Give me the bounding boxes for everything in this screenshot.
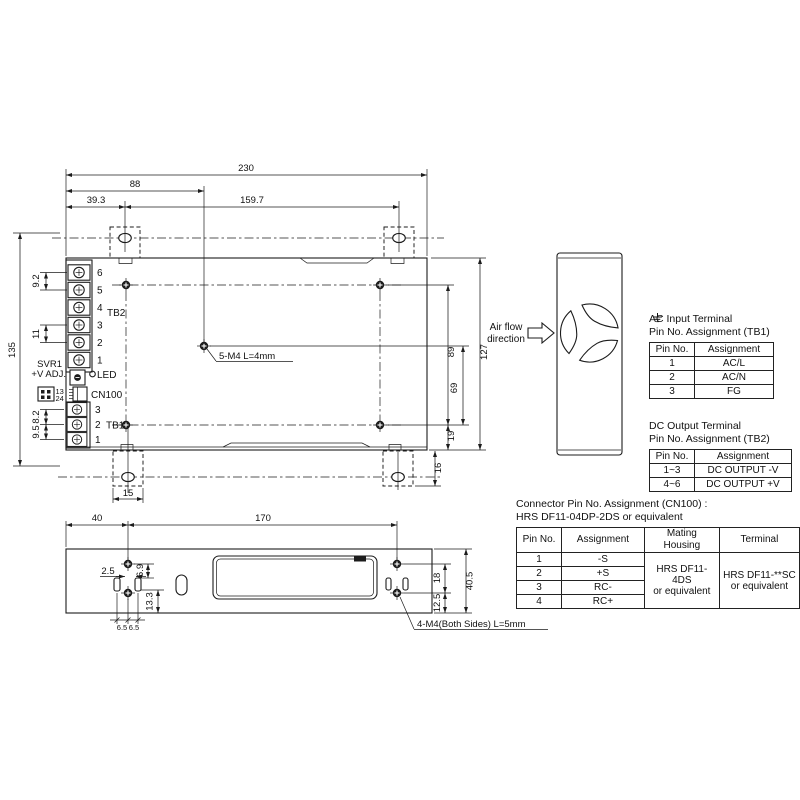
dim-135: 135 (7, 342, 18, 358)
pin-no: 4 (517, 595, 562, 609)
dim-88: 88 (130, 179, 141, 190)
dim-89: 89 (446, 347, 457, 358)
dim-6.5-left: 6.5 (117, 623, 127, 632)
ac-input-section: AC Input Terminal Pin No. Assignment (TB… (649, 313, 774, 399)
dim-40: 40 (92, 513, 103, 524)
dim-127: 127 (479, 344, 490, 360)
col-header: Assignment (562, 528, 645, 553)
ac-input-table: Pin No. Assignment 1 AC/L 2 AC/N 3 FG (649, 342, 774, 399)
ac-input-title-2: Pin No. Assignment (TB1) (649, 326, 774, 339)
pin-no: 2 (517, 567, 562, 581)
label-mark (354, 556, 366, 562)
v-adj-label: +V ADJ. (31, 369, 66, 380)
assignment: AC/L (695, 357, 774, 371)
vent-slot (403, 578, 408, 590)
vent-slot (114, 578, 120, 591)
dim-13.3: 13.3 (145, 592, 156, 611)
dc-output-title-1: DC Output Terminal (649, 420, 792, 433)
col-header: Pin No. (650, 450, 695, 464)
fan-icon (544, 284, 628, 368)
dim-18: 18 (432, 573, 443, 584)
cn100-table: Pin No. Assignment Mating Housing Termin… (516, 527, 800, 609)
tb2-pin-1: 1 (97, 356, 103, 367)
assignment: AC/N (695, 371, 774, 385)
col-header: Terminal (719, 528, 799, 553)
pin-no: 2 (650, 371, 695, 385)
screw-hole (119, 278, 133, 292)
cn100-connector-icon (73, 387, 87, 401)
dim-39.3: 39.3 (87, 195, 106, 206)
dim-11: 11 (31, 329, 42, 339)
col-header: Pin No. (517, 528, 562, 553)
pin-no: 3 (517, 581, 562, 595)
assignment: -S (562, 553, 645, 567)
dim-69: 69 (449, 383, 460, 394)
tb2-pin-4: 4 (97, 303, 103, 314)
dim-6.9: 6.9 (135, 564, 146, 577)
screw-hole (121, 586, 135, 600)
assignment: RC- (562, 581, 645, 595)
ac-input-title-1: AC Input Terminal (649, 313, 774, 326)
dim-15: 15 (123, 488, 134, 499)
cn100-plug-icon (38, 387, 54, 401)
dim-40.5: 40.5 (465, 572, 476, 591)
pin-no: 4~6 (650, 478, 695, 492)
dim-230: 230 (238, 163, 254, 174)
dim-170: 170 (255, 513, 271, 524)
oval-slot (176, 575, 187, 595)
dc-output-section: DC Output Terminal Pin No. Assignment (T… (649, 420, 792, 492)
table-row: 1 -S HRS DF11-4DS or equivalent HRS DF11… (517, 553, 800, 567)
assignment: FG (695, 385, 774, 399)
table-row: 1~3 DC OUTPUT -V (650, 464, 792, 478)
led-label: LED (97, 370, 116, 381)
pin-no: 1 (517, 553, 562, 567)
tb1-pin-2: 2 (95, 420, 101, 431)
pin-no: 3 (650, 385, 695, 399)
dim-159.7: 159.7 (240, 195, 264, 206)
bottom-screw-callout: 4-M4(Both Sides) L=5mm (417, 619, 526, 630)
side-view: Air flow direction (487, 253, 628, 455)
bottom-view: 40 170 2.5 6.9 13.3 6.5 6.5 18 12.5 (66, 513, 548, 632)
mechanical-drawing-page: 5-M4 L=4mm 230 88 39.3 159.7 135 89 69 1… (0, 0, 800, 800)
dim-12.5: 12.5 (432, 594, 443, 613)
tb1-pin-3: 3 (95, 405, 101, 416)
dim-8.2: 8.2 (31, 410, 42, 423)
terminal: HRS DF11-**SC or equivalent (719, 553, 799, 609)
pin-no: 1 (650, 357, 695, 371)
label-recess (213, 556, 377, 599)
table-row: 1 AC/L (650, 357, 774, 371)
pin-no: 1~3 (650, 464, 695, 478)
col-header: Assignment (695, 450, 792, 464)
cn100-pins-bottom: 24 (56, 394, 64, 403)
dim-16: 16 (433, 463, 444, 474)
terminal-block-tb2: 6 5 4 3 2 1 TB2 9.2 11 (31, 260, 126, 372)
dc-output-table: Pin No. Assignment 1~3 DC OUTPUT -V 4~6 … (649, 449, 792, 492)
cn100-title-1: Connector Pin No. Assignment (CN100) : (516, 498, 800, 511)
dc-output-title-2: Pin No. Assignment (TB2) (649, 433, 792, 446)
tb2-pin-6: 6 (97, 268, 103, 279)
airflow-arrow-icon (528, 323, 554, 343)
screw-callout: 5-M4 L=4mm (219, 351, 275, 362)
table-row: 3 FG (650, 385, 774, 399)
assignment: DC OUTPUT -V (695, 464, 792, 478)
tb2-pin-5: 5 (97, 286, 103, 297)
dim-19: 19 (446, 431, 457, 442)
assignment: DC OUTPUT +V (695, 478, 792, 492)
label-recess-inner (217, 559, 374, 596)
table-row: 2 AC/N (650, 371, 774, 385)
vent-slot (135, 578, 141, 591)
col-header: Mating Housing (644, 528, 719, 553)
screw-hole (390, 586, 404, 600)
dim-9.5: 9.5 (31, 425, 42, 438)
tb1-pin-1: 1 (95, 435, 101, 446)
assignment: +S (562, 567, 645, 581)
tb2-label: TB2 (107, 308, 126, 319)
col-header: Pin No. (650, 343, 695, 357)
assignment: RC+ (562, 595, 645, 609)
earth-ground-icon (652, 313, 663, 323)
mating-housing: HRS DF11-4DS or equivalent (644, 553, 719, 609)
top-view: 5-M4 L=4mm 230 88 39.3 159.7 135 89 69 1… (7, 163, 490, 503)
vent-slot (386, 578, 391, 590)
tb2-pin-2: 2 (97, 338, 103, 349)
dim-9.2: 9.2 (31, 274, 42, 287)
drawing-svg: 5-M4 L=4mm 230 88 39.3 159.7 135 89 69 1… (0, 0, 800, 800)
cn100-label: CN100 (91, 390, 123, 401)
terminal-block-tb1: 3 2 1 TB1 8.2 9.5 (31, 402, 125, 448)
screw-hole (373, 278, 387, 292)
table-row: 4~6 DC OUTPUT +V (650, 478, 792, 492)
dim-2.5: 2.5 (101, 566, 114, 577)
tb1-label: TB1 (106, 421, 125, 432)
cn100-section: Connector Pin No. Assignment (CN100) : H… (516, 498, 800, 609)
cn100-title-2: HRS DF11-04DP-2DS or equivalent (516, 511, 800, 524)
airflow-label-line2: direction (487, 334, 525, 345)
tb2-pin-3: 3 (97, 321, 103, 332)
dim-6.5-right: 6.5 (129, 623, 139, 632)
screw-hole (373, 418, 387, 432)
airflow-label-line1: Air flow (490, 322, 524, 333)
col-header: Assignment (695, 343, 774, 357)
